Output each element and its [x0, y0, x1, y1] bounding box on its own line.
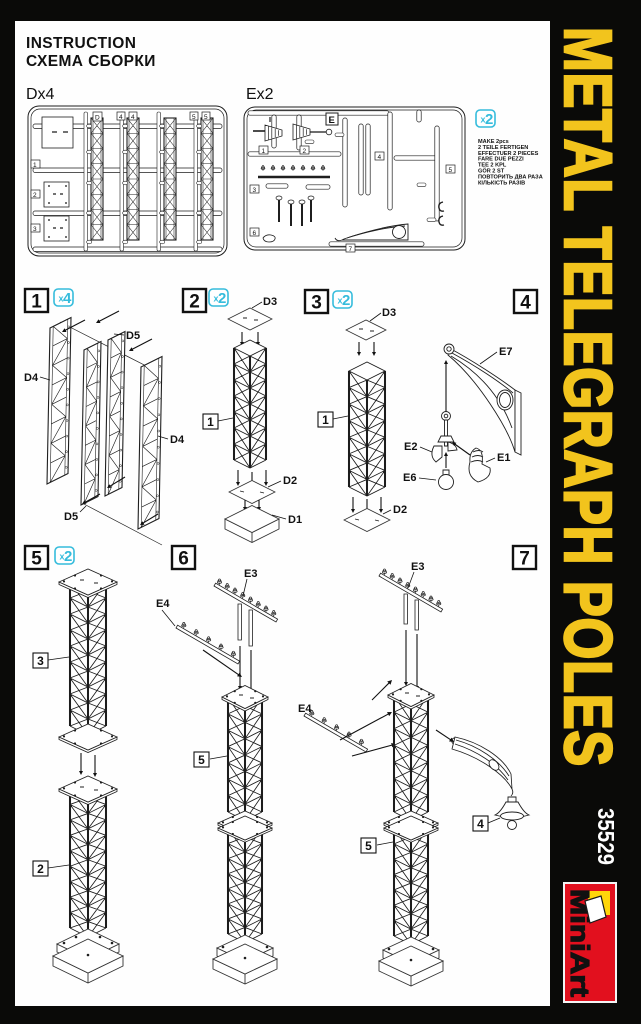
svg-text:E1: E1: [497, 452, 510, 464]
svg-text:Ex2: Ex2: [246, 86, 274, 103]
svg-text:5: 5: [198, 753, 205, 767]
svg-text:INSTRUCTION: INSTRUCTION: [26, 35, 136, 52]
svg-text:D4: D4: [24, 372, 39, 384]
svg-text:E4: E4: [156, 598, 170, 610]
svg-text:4: 4: [63, 290, 72, 307]
svg-text:6: 6: [253, 230, 257, 237]
svg-text:1: 1: [31, 291, 42, 312]
svg-text:3: 3: [33, 226, 37, 233]
svg-text:2: 2: [189, 291, 200, 312]
svg-text:1: 1: [33, 162, 37, 169]
svg-text:2: 2: [342, 292, 350, 309]
svg-text:3: 3: [253, 187, 257, 194]
svg-text:2: 2: [33, 192, 37, 199]
svg-text:Dx4: Dx4: [26, 86, 55, 103]
svg-text:D5: D5: [126, 330, 140, 342]
svg-text:D2: D2: [393, 504, 407, 516]
svg-text:1: 1: [207, 415, 214, 429]
svg-text:D3: D3: [382, 307, 396, 319]
svg-text:35529: 35529: [593, 808, 619, 865]
svg-text:E3: E3: [244, 568, 257, 580]
svg-text:4: 4: [477, 817, 484, 831]
svg-text:СХЕМА СБОРКИ: СХЕМА СБОРКИ: [26, 53, 156, 70]
svg-text:D2: D2: [283, 475, 297, 487]
svg-text:5: 5: [192, 114, 196, 121]
svg-text:E2: E2: [404, 441, 417, 453]
svg-text:2: 2: [37, 862, 44, 876]
svg-text:D: D: [95, 115, 100, 122]
svg-text:7: 7: [519, 548, 530, 569]
svg-text:2: 2: [218, 290, 226, 307]
svg-text:1: 1: [322, 413, 329, 427]
svg-text:1: 1: [262, 148, 266, 155]
svg-text:D3: D3: [263, 296, 277, 308]
svg-text:КІЛЬКІСТЬ РАЗІВ: КІЛЬКІСТЬ РАЗІВ: [478, 180, 525, 186]
svg-text:5: 5: [449, 167, 453, 174]
svg-text:E4: E4: [298, 703, 312, 715]
svg-text:D4: D4: [170, 434, 185, 446]
svg-text:E6: E6: [403, 472, 416, 484]
svg-text:4: 4: [131, 114, 135, 121]
svg-text:4: 4: [119, 114, 123, 121]
svg-text:5: 5: [31, 548, 42, 569]
svg-text:3: 3: [311, 292, 322, 313]
svg-text:7: 7: [349, 246, 353, 253]
svg-text:METAL TELEGRAPH POLES: METAL TELEGRAPH POLES: [550, 27, 625, 767]
svg-text:D1: D1: [288, 514, 302, 526]
svg-text:5: 5: [365, 839, 372, 853]
svg-text:3: 3: [37, 654, 44, 668]
svg-text:E3: E3: [411, 561, 424, 573]
svg-text:4: 4: [378, 154, 382, 161]
svg-text:2: 2: [485, 111, 493, 128]
svg-text:4: 4: [520, 292, 531, 313]
svg-text:5: 5: [204, 114, 208, 121]
svg-text:2: 2: [64, 548, 72, 565]
svg-text:D5: D5: [64, 511, 78, 523]
svg-text:E7: E7: [499, 346, 512, 358]
svg-text:E: E: [329, 115, 335, 126]
svg-text:2: 2: [303, 148, 307, 155]
svg-text:6: 6: [178, 548, 189, 569]
